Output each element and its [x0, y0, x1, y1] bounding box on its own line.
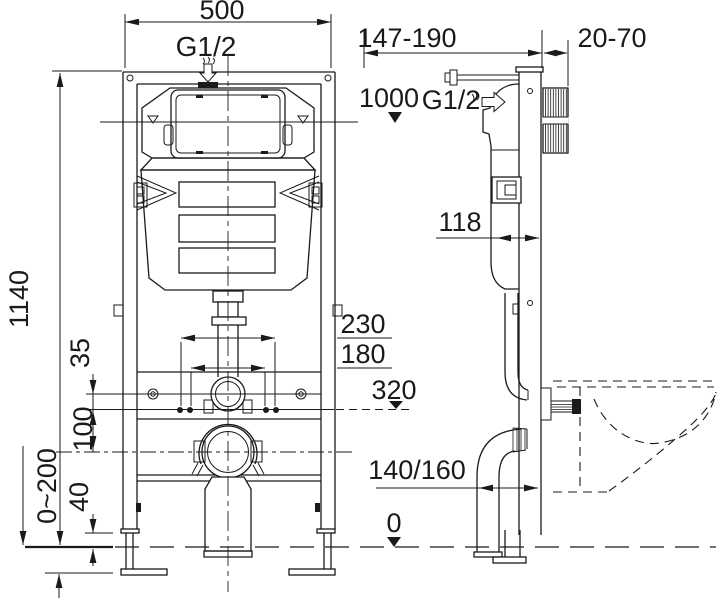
- level-marker-icon: [387, 537, 401, 547]
- clamp-spring: [192, 463, 203, 476]
- opening-tab: [261, 151, 268, 154]
- stud-bolt: [273, 407, 279, 413]
- leg-cap: [317, 529, 335, 533]
- dim-bend-drop: 100: [68, 406, 98, 451]
- rail-top-cap: [516, 67, 543, 72]
- dim-wall-thickness: 20-70: [544, 23, 647, 86]
- rail-hole: [528, 301, 533, 306]
- fixing-stud: [541, 388, 581, 420]
- dim-label-floor-level: 0: [386, 508, 401, 538]
- clamp-spring: [253, 463, 264, 476]
- down-flow-arrow-icon: [200, 64, 216, 82]
- foot-plate: [121, 569, 167, 575]
- reference-lines: [25, 410, 716, 574]
- dim-inlet-thread: G1/2: [176, 31, 237, 62]
- dim-frame-depth: 118: [436, 207, 539, 241]
- dim-label-drain-offset: 140/160: [368, 455, 466, 485]
- dim-stud-height: 320: [371, 375, 416, 409]
- stud-bolt: [177, 407, 183, 413]
- dim-label-overall-width: 500: [199, 0, 244, 25]
- dim-foot-height: 40: [64, 482, 96, 566]
- foot-plate: [289, 569, 335, 575]
- dim-label-stud-spacing-inner: 180: [340, 339, 385, 369]
- dim-overall-height: 1140: [4, 71, 122, 545]
- flush-pipe-side: [505, 293, 528, 400]
- dim-drain-offset: 140/160: [368, 455, 538, 491]
- housing-rib: [179, 215, 275, 242]
- dim-label-bend-drop: 100: [68, 406, 98, 451]
- rail-clip: [114, 305, 123, 316]
- front-view: [56, 56, 358, 592]
- foot-plate: [493, 557, 526, 563]
- installation-drawing: 500 G1/2 1140 35 100 0~200: [0, 0, 722, 600]
- dim-label-stud-spacing-outer: 230: [340, 309, 385, 339]
- dim-supply-height: 1000 G1/2: [359, 83, 480, 123]
- dim-label-foot-height: 40: [64, 482, 94, 512]
- leg-cap: [121, 529, 139, 533]
- corner-screw-hole: [325, 75, 331, 81]
- dim-label-stud-height: 320: [371, 375, 416, 405]
- corner-screw-hole: [127, 75, 133, 81]
- opening-tab: [196, 95, 203, 98]
- dim-leg-adjustment: 0~200: [20, 446, 63, 598]
- flush-plate-rod: [445, 70, 519, 85]
- wc-bowl-outline: [553, 381, 716, 492]
- dim-label-hole-offset: 35: [65, 338, 95, 368]
- dim-label-inlet-thread: G1/2: [176, 31, 237, 62]
- inlet-fitting: [198, 82, 218, 88]
- rail-latch: [136, 503, 141, 512]
- opening-tab: [196, 151, 203, 154]
- dim-label-frame-depth: 118: [438, 207, 481, 237]
- dim-label-wall-distance: 147-190: [357, 23, 456, 53]
- dim-label-overall-height: 1140: [4, 270, 34, 328]
- dim-label-supply-height: 1000: [359, 83, 419, 113]
- level-marker-icon: [388, 112, 402, 123]
- dim-label-wall-thickness: 20-70: [577, 23, 646, 53]
- dim-floor-level: 0: [386, 508, 401, 547]
- technical-drawing-sheet: 500 G1/2 1140 35 100 0~200: [0, 0, 722, 600]
- dim-label-side-inlet-thread: G1/2: [422, 85, 481, 115]
- finished-wall-section: [543, 88, 569, 153]
- rail-latch: [315, 503, 320, 512]
- opening-tab: [261, 95, 268, 98]
- stud-bolt: [263, 407, 269, 413]
- flush-pipe-front: [212, 291, 246, 377]
- housing-rib: [179, 182, 275, 207]
- housing-rib: [179, 248, 275, 273]
- stud-bolt: [187, 407, 193, 413]
- rail-hole: [528, 89, 533, 94]
- side-cistern: [483, 84, 521, 289]
- dim-wall-distance: 147-190: [357, 23, 542, 68]
- dim-label-leg-adjustment: 0~200: [32, 448, 62, 524]
